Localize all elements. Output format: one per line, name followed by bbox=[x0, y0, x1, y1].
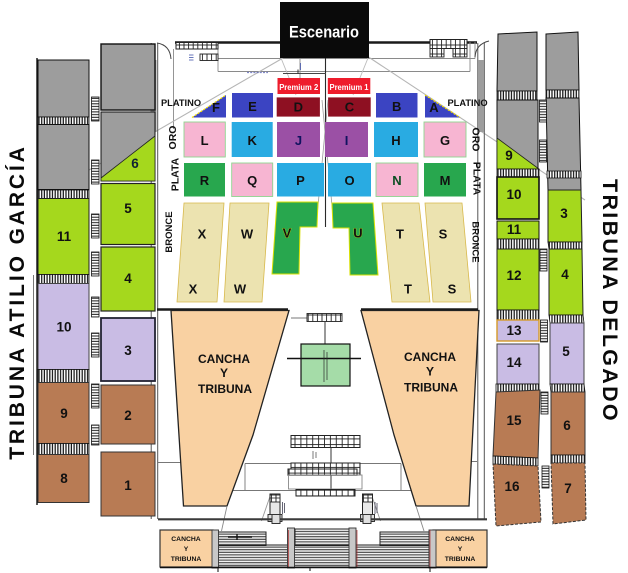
svg-text:I: I bbox=[345, 133, 349, 148]
svg-text:16: 16 bbox=[504, 479, 520, 494]
svg-text:PLATINO: PLATINO bbox=[447, 98, 487, 108]
svg-text:5: 5 bbox=[124, 201, 132, 216]
svg-text:ORO: ORO bbox=[470, 128, 482, 152]
svg-text:2: 2 bbox=[124, 408, 132, 423]
svg-text:G: G bbox=[440, 133, 450, 148]
svg-text:TRIBUNA: TRIBUNA bbox=[445, 556, 476, 563]
svg-text:CANCHA: CANCHA bbox=[404, 350, 456, 364]
svg-text:Premium 1: Premium 1 bbox=[330, 83, 370, 92]
svg-text:ORO: ORO bbox=[167, 126, 179, 150]
svg-text:J: J bbox=[295, 133, 302, 148]
svg-text:6: 6 bbox=[131, 156, 139, 171]
svg-text:T: T bbox=[396, 227, 404, 242]
svg-text:E: E bbox=[248, 99, 257, 114]
svg-text:5: 5 bbox=[562, 344, 570, 359]
svg-text:PLATINO: PLATINO bbox=[161, 98, 201, 108]
svg-text:P: P bbox=[296, 173, 305, 188]
svg-text:X: X bbox=[198, 227, 207, 242]
svg-text:TRIBUNA: TRIBUNA bbox=[404, 381, 458, 395]
svg-text:L: L bbox=[201, 133, 209, 148]
svg-text:Y: Y bbox=[426, 365, 434, 379]
svg-text:4: 4 bbox=[124, 271, 132, 286]
svg-text:S: S bbox=[448, 282, 457, 297]
svg-text:TRIBUNA ATILIO GARCÍA: TRIBUNA ATILIO GARCÍA bbox=[6, 144, 29, 460]
svg-text:H: H bbox=[391, 133, 400, 148]
svg-text:S: S bbox=[439, 227, 448, 242]
svg-text:O: O bbox=[344, 173, 354, 188]
svg-text:N: N bbox=[392, 173, 401, 188]
svg-text:C: C bbox=[345, 100, 355, 115]
svg-text:CANCHA: CANCHA bbox=[198, 352, 250, 366]
svg-text:Premium 2: Premium 2 bbox=[279, 83, 319, 92]
svg-text:BRONCE: BRONCE bbox=[470, 221, 481, 262]
svg-text:6: 6 bbox=[563, 418, 571, 433]
svg-text:3: 3 bbox=[124, 343, 132, 358]
svg-text:8: 8 bbox=[60, 471, 68, 486]
svg-text:10: 10 bbox=[56, 320, 71, 335]
svg-text:10: 10 bbox=[506, 187, 521, 202]
svg-text:PLATA: PLATA bbox=[471, 162, 483, 196]
svg-text:TRIBUNA: TRIBUNA bbox=[171, 556, 202, 563]
svg-text:W: W bbox=[241, 227, 254, 242]
svg-text:9: 9 bbox=[505, 148, 513, 163]
svg-text:U: U bbox=[353, 226, 362, 241]
svg-text:PLATA: PLATA bbox=[170, 157, 182, 191]
svg-text:7: 7 bbox=[564, 481, 572, 496]
svg-text:Y: Y bbox=[220, 366, 228, 380]
svg-text:V: V bbox=[283, 226, 292, 241]
svg-text:4: 4 bbox=[561, 267, 569, 282]
svg-text:11: 11 bbox=[57, 229, 72, 244]
svg-text:D: D bbox=[294, 100, 303, 115]
svg-text:9: 9 bbox=[60, 406, 68, 421]
svg-text:B: B bbox=[392, 99, 401, 114]
svg-text:M: M bbox=[440, 173, 451, 188]
svg-text:Q: Q bbox=[247, 173, 257, 188]
svg-text:F: F bbox=[212, 100, 220, 115]
svg-text:11: 11 bbox=[507, 222, 522, 237]
svg-text:1: 1 bbox=[124, 478, 132, 493]
svg-text:Y: Y bbox=[184, 546, 189, 553]
svg-text:CANCHA: CANCHA bbox=[171, 536, 201, 543]
svg-text:Escenario: Escenario bbox=[289, 23, 359, 42]
svg-text:3: 3 bbox=[560, 206, 568, 221]
svg-text:W: W bbox=[234, 282, 247, 297]
svg-text:R: R bbox=[200, 173, 210, 188]
svg-text:T: T bbox=[404, 282, 412, 297]
svg-text:12: 12 bbox=[506, 268, 521, 283]
svg-text:15: 15 bbox=[506, 413, 522, 428]
svg-text:X: X bbox=[189, 282, 198, 297]
svg-text:K: K bbox=[248, 133, 258, 148]
svg-text:CANCHA: CANCHA bbox=[445, 536, 475, 543]
svg-text:Y: Y bbox=[458, 546, 463, 553]
svg-text:TRIBUNA: TRIBUNA bbox=[198, 382, 252, 396]
svg-text:BRONCE: BRONCE bbox=[164, 211, 175, 252]
svg-text:13: 13 bbox=[506, 323, 522, 338]
svg-text:14: 14 bbox=[506, 355, 522, 370]
svg-text:TRIBUNA DELGADO: TRIBUNA DELGADO bbox=[598, 179, 622, 423]
svg-text:A: A bbox=[429, 100, 439, 115]
